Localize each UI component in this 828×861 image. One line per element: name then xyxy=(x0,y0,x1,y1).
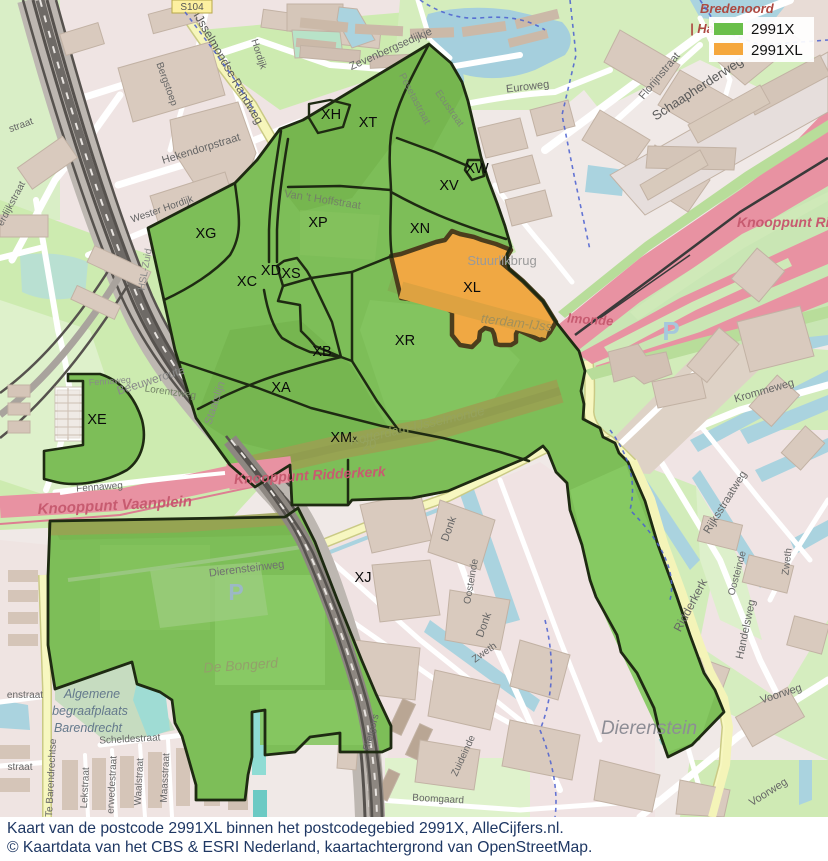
svg-text:XS: XS xyxy=(281,266,300,282)
svg-text:S104: S104 xyxy=(180,2,204,13)
svg-text:Lekstraat: Lekstraat xyxy=(79,767,92,809)
svg-text:begraafplaats: begraafplaats xyxy=(52,704,128,718)
svg-text:straat: straat xyxy=(7,762,32,773)
svg-text:XA: XA xyxy=(271,380,291,396)
svg-text:2991X: 2991X xyxy=(751,21,794,38)
svg-text:2991XL: 2991XL xyxy=(751,42,803,59)
svg-text:XW: XW xyxy=(465,161,489,177)
svg-text:XE: XE xyxy=(87,412,107,428)
svg-text:XG: XG xyxy=(196,226,217,242)
svg-text:XR: XR xyxy=(395,333,415,349)
svg-text:XV: XV xyxy=(439,178,459,194)
svg-text:Barendrecht: Barendrecht xyxy=(54,721,123,735)
svg-text:XJ: XJ xyxy=(355,570,372,586)
svg-text:Bredenoord: Bredenoord xyxy=(700,1,775,16)
svg-text:P: P xyxy=(662,316,679,346)
svg-text:XB: XB xyxy=(312,344,331,360)
svg-text:XC: XC xyxy=(237,274,257,290)
svg-text:XL: XL xyxy=(463,280,481,296)
svg-text:XT: XT xyxy=(359,115,378,131)
svg-text:Algemene: Algemene xyxy=(63,687,120,701)
svg-text:XN: XN xyxy=(410,221,430,237)
svg-text:XD: XD xyxy=(261,263,281,279)
svg-text:XH: XH xyxy=(321,107,341,123)
svg-text:Stuurlikbrug: Stuurlikbrug xyxy=(467,253,536,268)
svg-text:enstraat: enstraat xyxy=(7,690,43,701)
svg-text:P: P xyxy=(228,579,243,605)
svg-text:XP: XP xyxy=(308,215,327,231)
svg-text:Dierenstein: Dierenstein xyxy=(601,718,697,739)
svg-text:Knooppunt Ri: Knooppunt Ri xyxy=(737,214,828,230)
